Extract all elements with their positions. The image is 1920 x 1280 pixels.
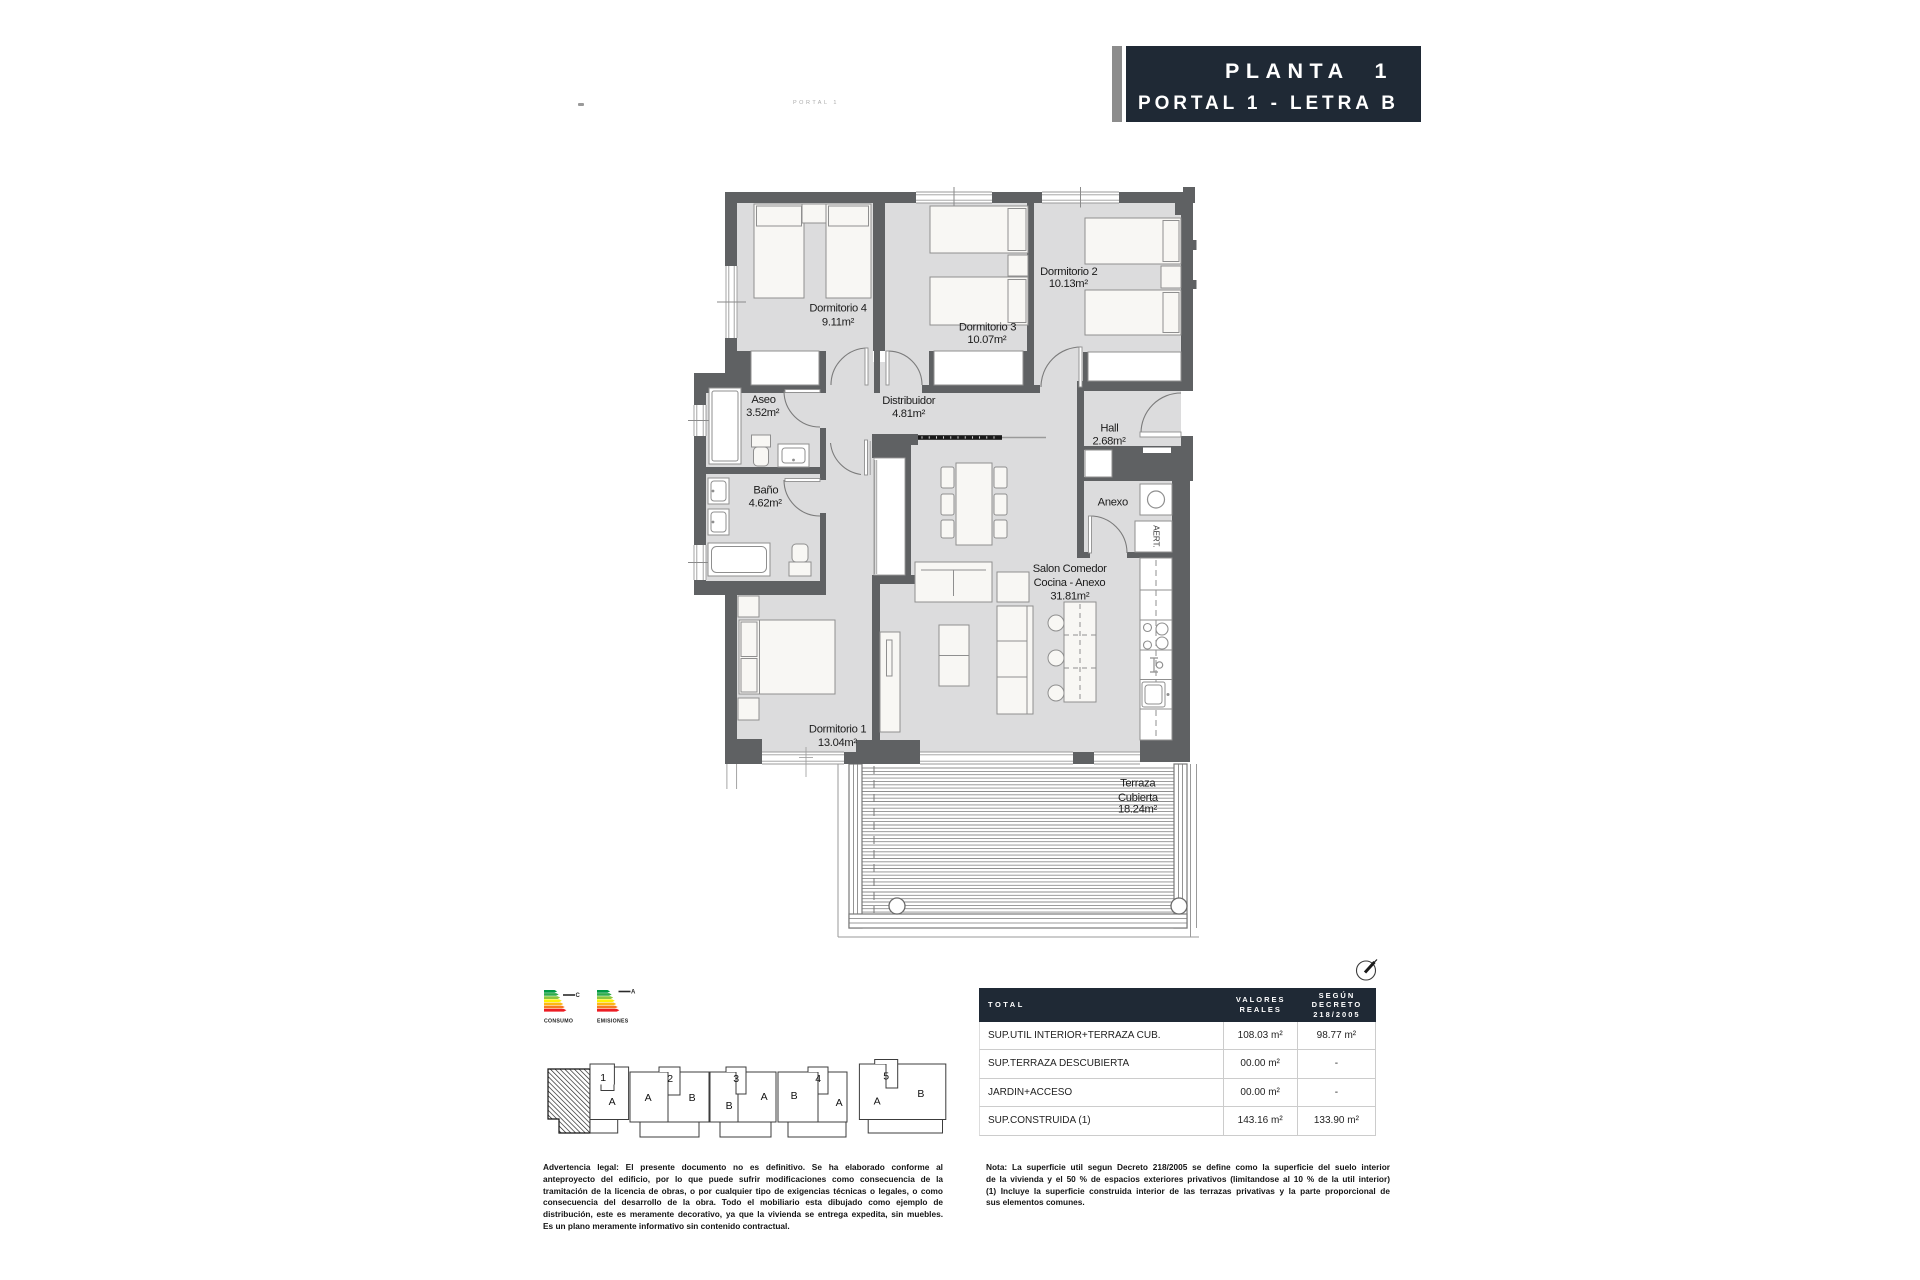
svg-text:3: 3 <box>733 1073 739 1085</box>
svg-text:A: A <box>836 1097 843 1109</box>
svg-text:18.24m²: 18.24m² <box>1118 804 1158 816</box>
svg-text:Dormitorio 4: Dormitorio 4 <box>809 303 866 315</box>
svg-text:Terraza: Terraza <box>1120 778 1156 790</box>
svg-text:EMISIONES: EMISIONES <box>597 1019 629 1025</box>
svg-text:CONSUMO: CONSUMO <box>544 1019 573 1025</box>
svg-text:AERT.: AERT. <box>1152 525 1161 548</box>
svg-text:Dormitorio 1: Dormitorio 1 <box>809 724 866 736</box>
svg-text:4.62m²: 4.62m² <box>749 498 783 510</box>
svg-text:C: C <box>575 993 580 999</box>
svg-text:9.11m²: 9.11m² <box>822 317 855 329</box>
svg-text:31.81m²: 31.81m² <box>1050 590 1090 602</box>
svg-text:A: A <box>874 1096 881 1108</box>
svg-text:5: 5 <box>883 1071 889 1083</box>
svg-text:B: B <box>791 1090 798 1102</box>
svg-text:Baño: Baño <box>753 485 778 497</box>
svg-text:10.13m²: 10.13m² <box>1049 278 1089 290</box>
svg-text:B: B <box>917 1088 924 1100</box>
svg-text:A: A <box>761 1091 768 1103</box>
svg-text:Aseo: Aseo <box>751 394 775 406</box>
svg-text:A: A <box>609 1096 616 1108</box>
svg-text:2.68m²: 2.68m² <box>1092 435 1126 447</box>
svg-text:2: 2 <box>667 1073 673 1085</box>
svg-text:10.07m²: 10.07m² <box>967 334 1007 346</box>
svg-text:A: A <box>645 1092 652 1104</box>
svg-text:Distribuidor: Distribuidor <box>882 395 936 407</box>
svg-text:13.04m²: 13.04m² <box>818 737 858 749</box>
svg-text:B: B <box>689 1092 696 1104</box>
svg-text:Salon Comedor: Salon Comedor <box>1033 563 1107 575</box>
svg-text:Anexo: Anexo <box>1098 497 1128 509</box>
svg-text:Cubierta: Cubierta <box>1118 792 1159 804</box>
svg-text:Cocina - Anexo: Cocina - Anexo <box>1034 577 1106 589</box>
svg-text:A: A <box>631 990 636 996</box>
svg-text:Dormitorio 3: Dormitorio 3 <box>959 321 1016 333</box>
svg-text:4: 4 <box>815 1073 821 1085</box>
svg-text:B: B <box>726 1100 733 1112</box>
svg-text:1: 1 <box>600 1072 606 1084</box>
svg-text:Dormitorio 2: Dormitorio 2 <box>1040 266 1097 278</box>
svg-text:4.81m²: 4.81m² <box>892 408 926 420</box>
svg-text:Hall: Hall <box>1100 423 1118 435</box>
svg-text:3.52m²: 3.52m² <box>746 407 780 419</box>
